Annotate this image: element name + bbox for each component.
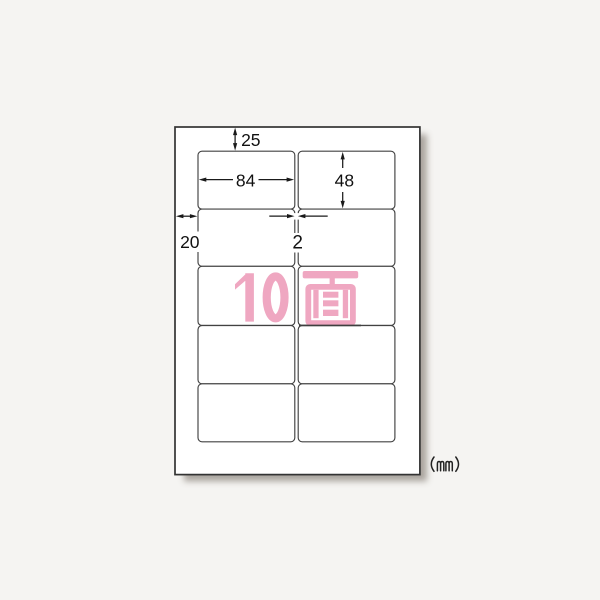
svg-text:25: 25 [241,130,260,150]
svg-text:84: 84 [236,170,256,190]
svg-text:2: 2 [292,233,303,254]
svg-text:20: 20 [180,232,200,252]
svg-text:48: 48 [335,170,354,190]
